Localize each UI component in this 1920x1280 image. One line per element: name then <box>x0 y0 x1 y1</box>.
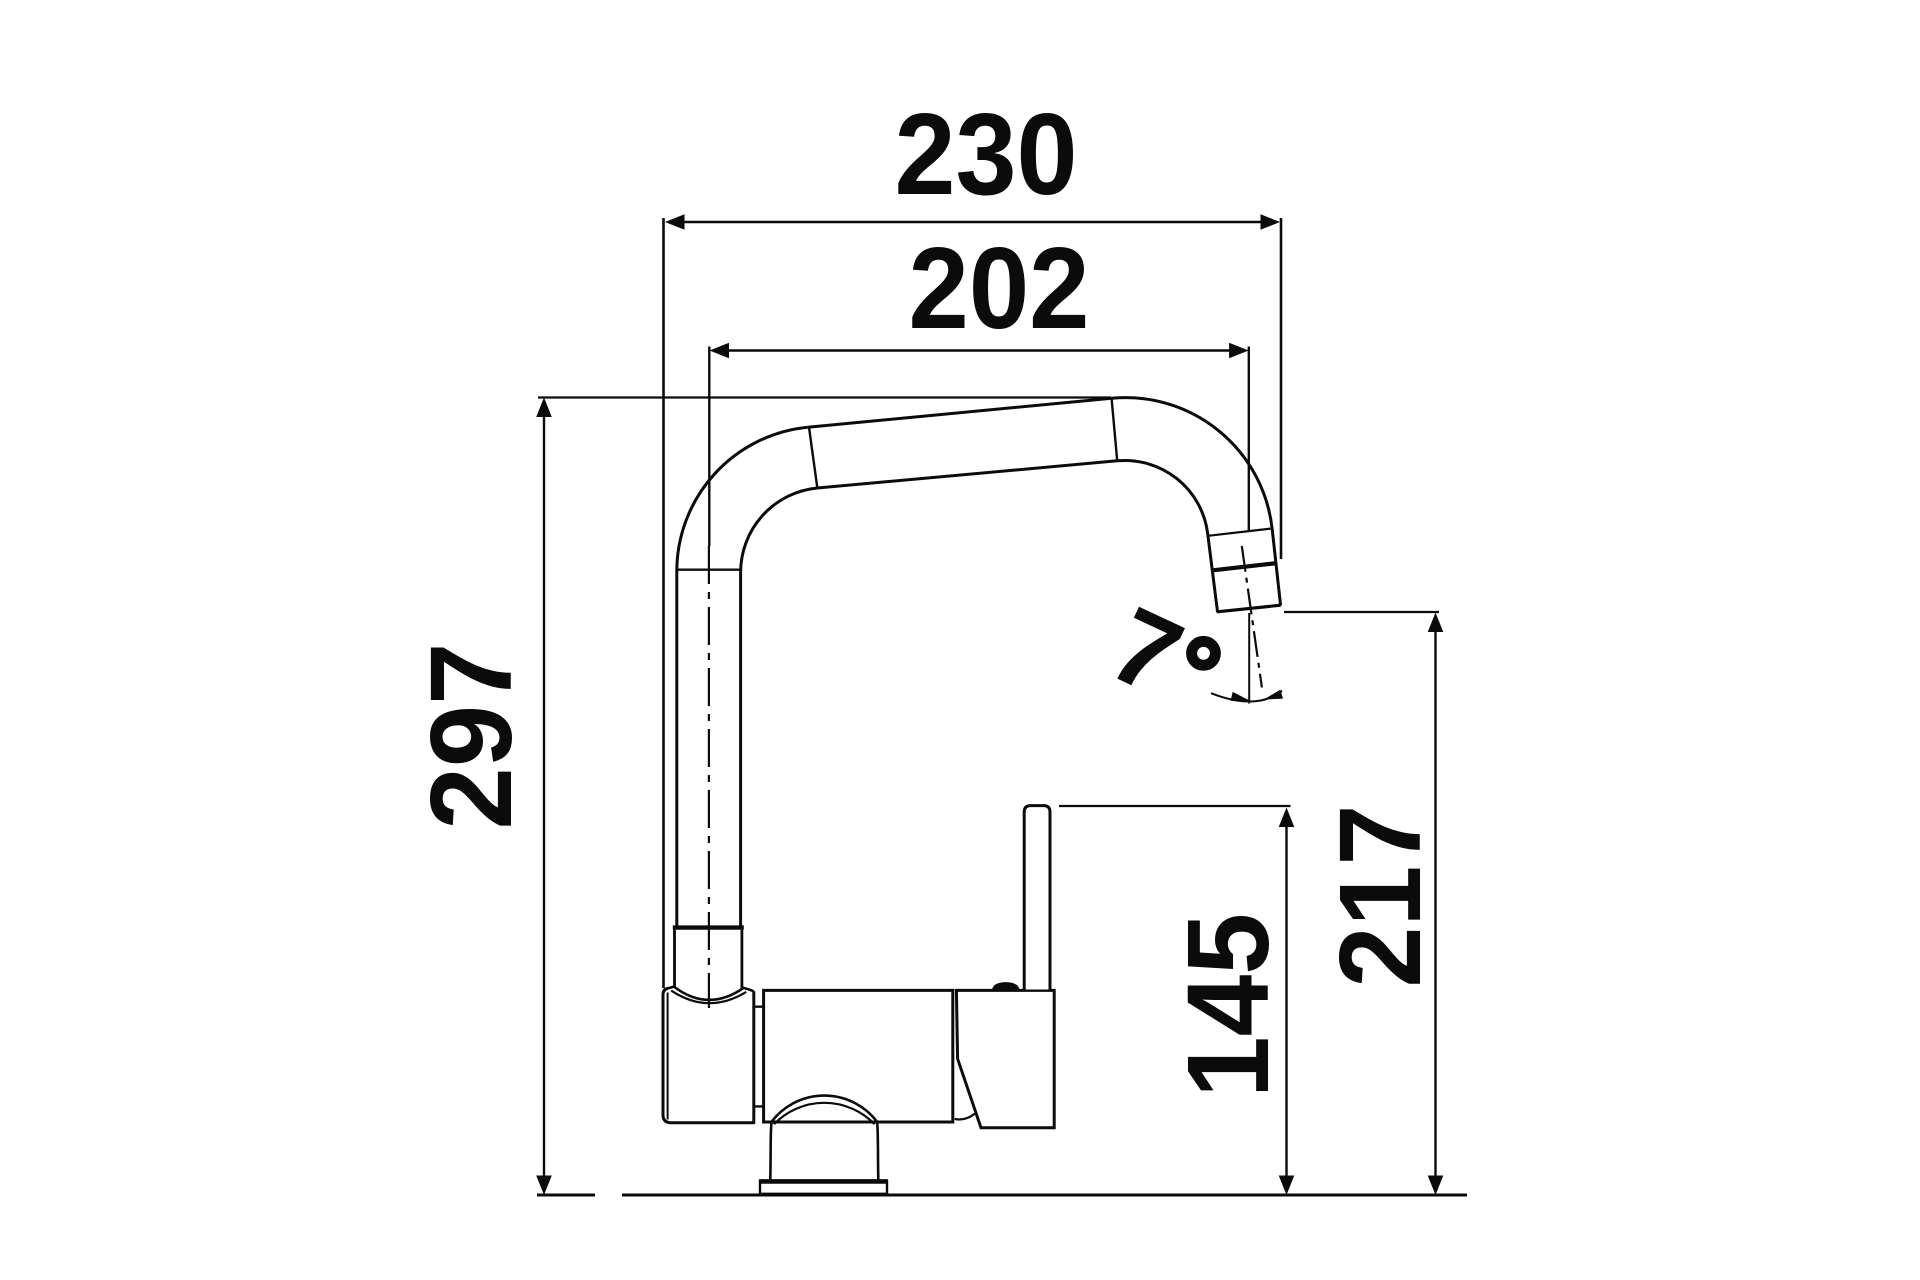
svg-text:202: 202 <box>909 223 1090 353</box>
svg-text:145: 145 <box>1163 913 1293 1098</box>
svg-text:230: 230 <box>895 89 1078 219</box>
svg-text:297: 297 <box>406 643 536 830</box>
svg-text:217: 217 <box>1315 805 1445 988</box>
